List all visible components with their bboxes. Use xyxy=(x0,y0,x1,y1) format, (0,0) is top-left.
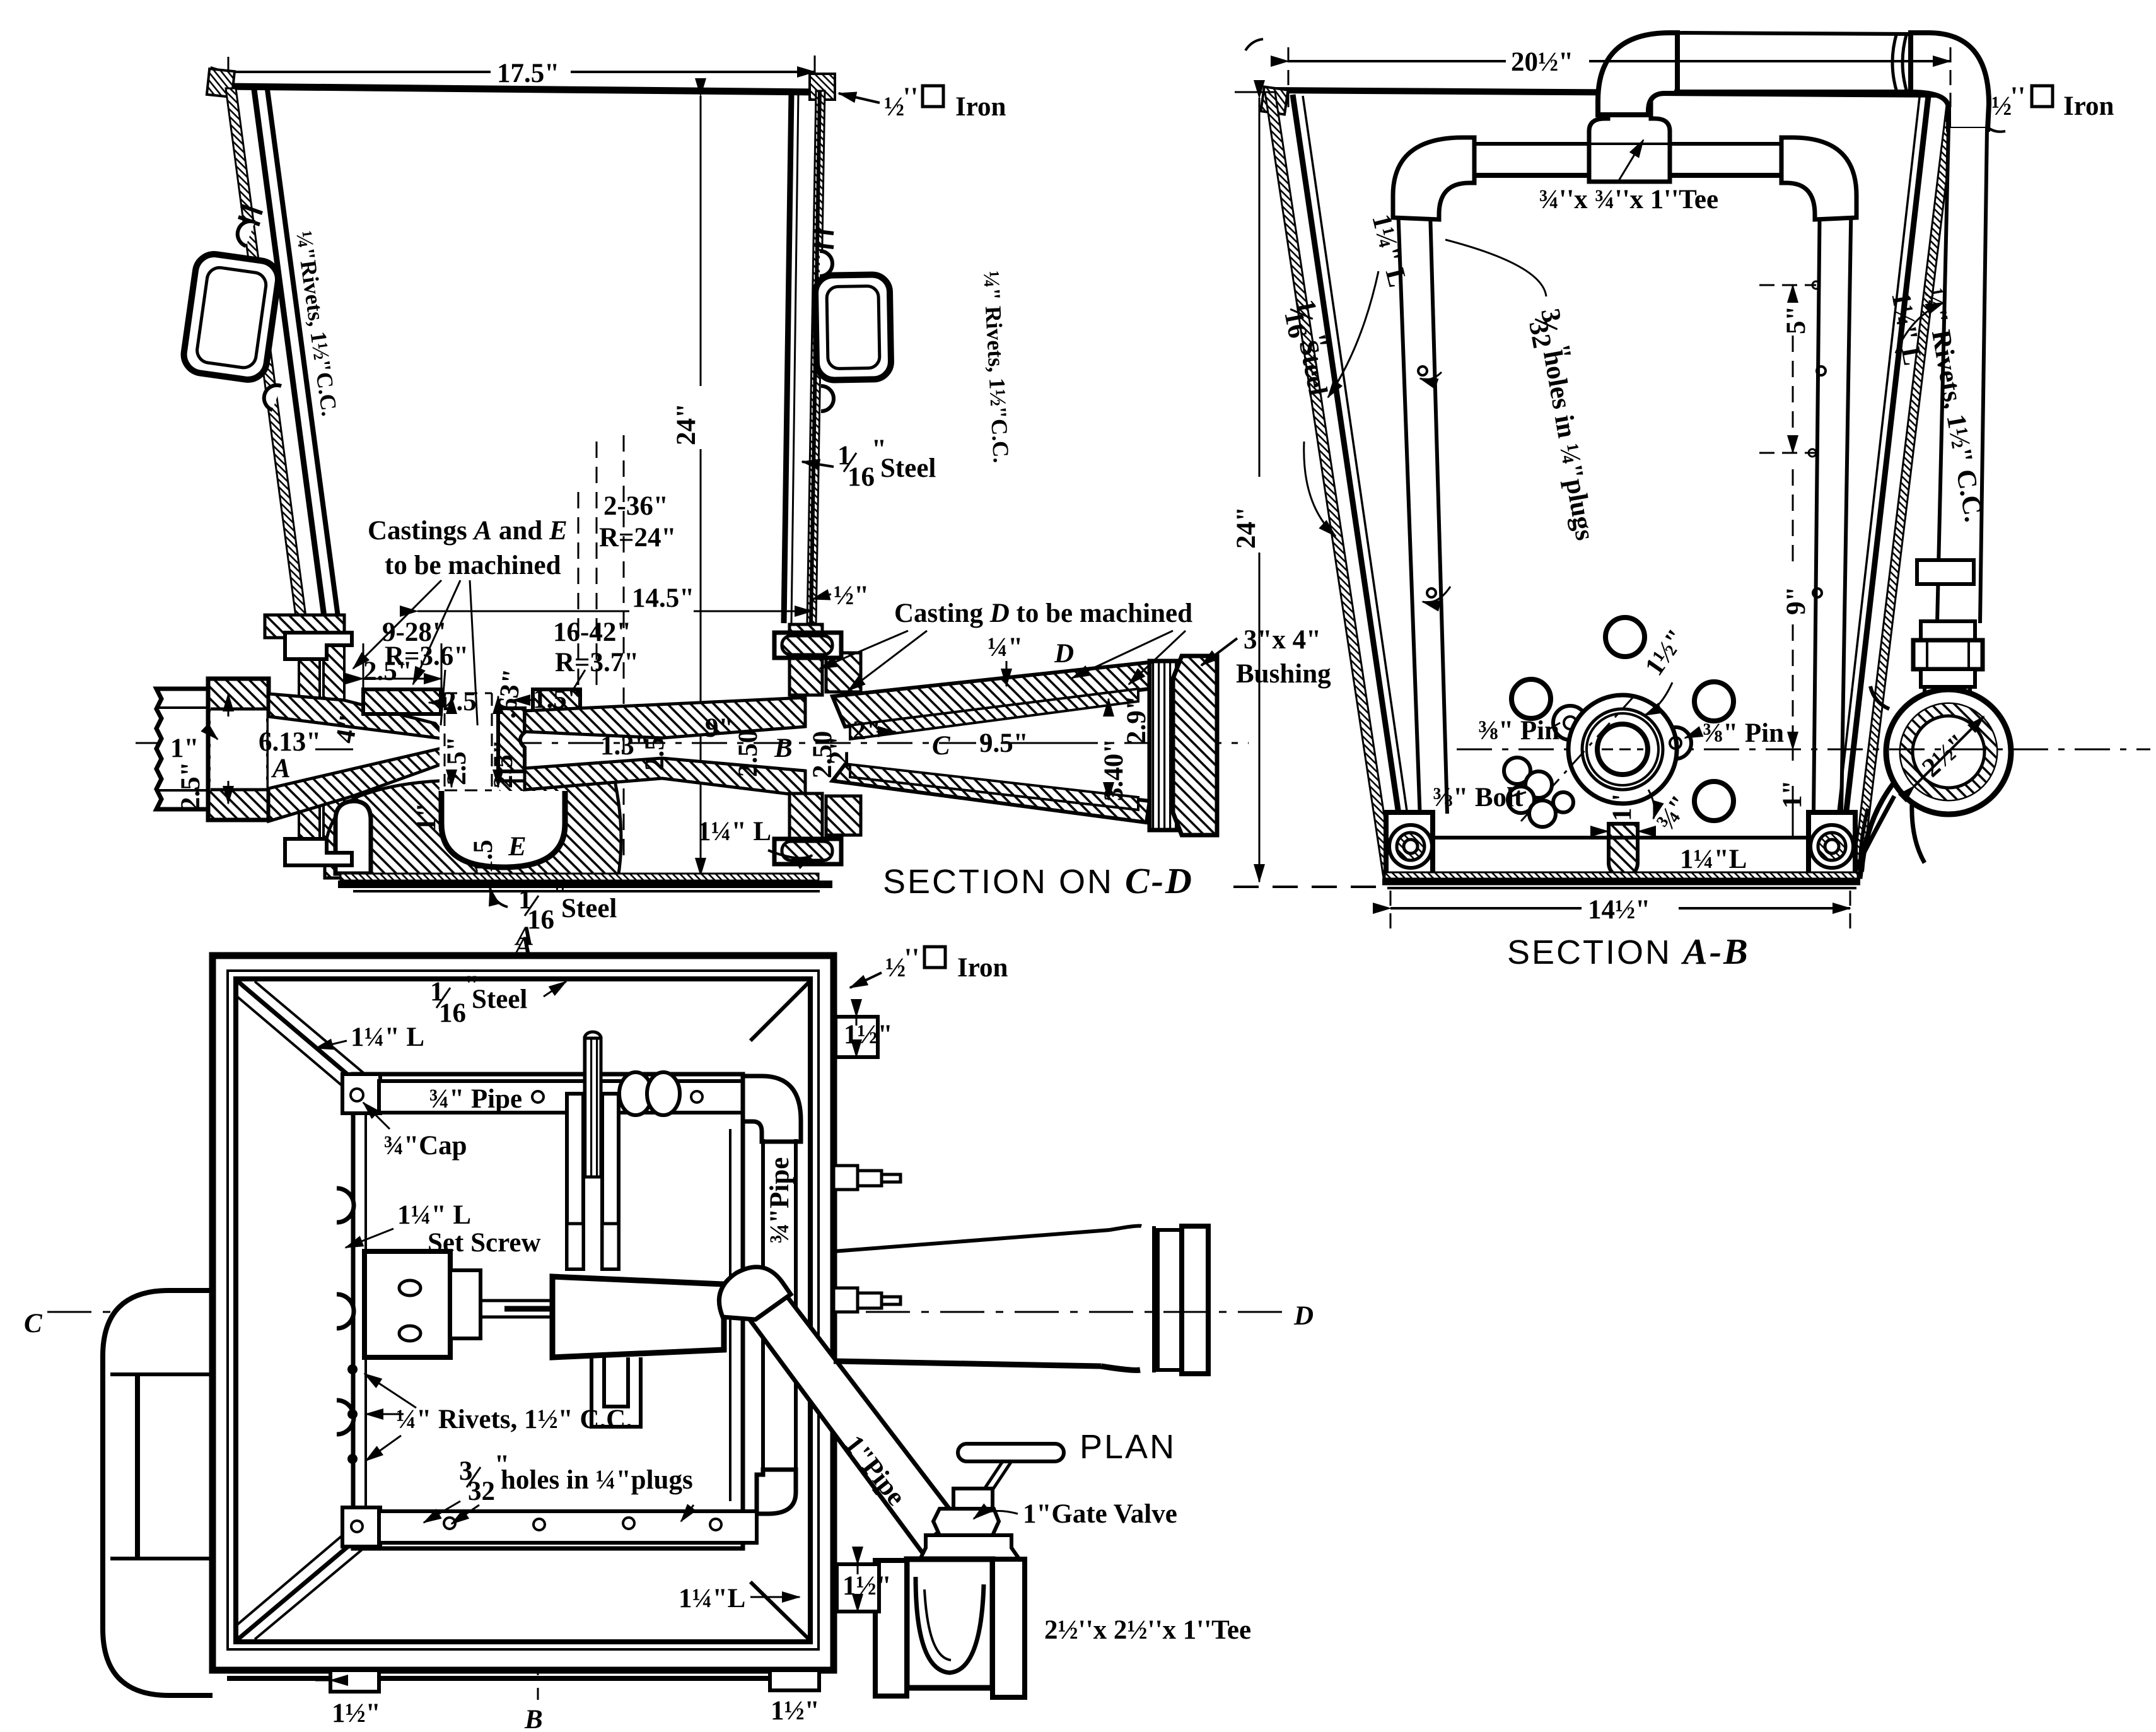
svg-text:Casting D to be machined: Casting D to be machined xyxy=(894,599,1192,628)
svg-text:2.9": 2.9" xyxy=(1122,695,1151,744)
svg-text:20½": 20½" xyxy=(1511,47,1573,77)
svg-text:Steel: Steel xyxy=(561,894,617,923)
svg-text:2.50: 2.50 xyxy=(733,730,763,777)
svg-text:2.5": 2.5" xyxy=(442,736,472,785)
svg-text:3.40": 3.40" xyxy=(1099,739,1129,801)
svg-text:1¼"L: 1¼"L xyxy=(1680,845,1747,874)
svg-text:1½": 1½" xyxy=(844,1020,893,1050)
svg-text:16-42": 16-42" xyxy=(553,617,631,647)
svg-text:9": 9" xyxy=(1781,587,1811,615)
svg-text:Iron: Iron xyxy=(957,953,1008,983)
svg-text:1": 1" xyxy=(1607,793,1637,821)
svg-text:Bushing: Bushing xyxy=(1236,659,1331,689)
svg-text:1": 1" xyxy=(1778,780,1807,809)
svg-text:½: ½ xyxy=(885,953,906,983)
svg-text:14½": 14½" xyxy=(1588,895,1650,925)
svg-text:½": ½" xyxy=(834,581,869,611)
svg-text:32: 32 xyxy=(468,1477,495,1506)
svg-text:½: ½ xyxy=(1991,91,2012,121)
svg-text:C: C xyxy=(932,731,951,761)
svg-text:1½": 1½" xyxy=(771,1696,820,1726)
svg-text:B: B xyxy=(774,734,793,763)
svg-text:¾''x ¾''x 1''Tee: ¾''x ¾''x 1''Tee xyxy=(1539,185,1718,214)
svg-text:1.5": 1.5" xyxy=(533,684,582,714)
svg-text:A: A xyxy=(514,922,534,951)
svg-text:D: D xyxy=(1293,1301,1314,1331)
svg-text:SECTION A-B: SECTION A-B xyxy=(1507,931,1750,972)
svg-text:1.5: 1.5 xyxy=(469,840,498,874)
svg-text:A: A xyxy=(271,754,291,783)
svg-text:Steel: Steel xyxy=(880,453,936,483)
svg-text:2.5: 2.5 xyxy=(640,737,670,771)
svg-text:¼": ¼" xyxy=(988,633,1023,662)
svg-text:5": 5" xyxy=(1781,306,1811,334)
svg-text:14.5": 14.5" xyxy=(632,583,694,613)
svg-text:24": 24" xyxy=(672,403,701,445)
svg-text:2.5": 2.5" xyxy=(176,761,206,810)
svg-text:'': '' xyxy=(2010,82,2025,112)
svg-text:⅜" Pin: ⅜" Pin xyxy=(1478,716,1559,746)
svg-text:1¼"L: 1¼"L xyxy=(679,1584,745,1613)
svg-text:Steel: Steel xyxy=(472,985,527,1014)
svg-text:2.5": 2.5" xyxy=(363,657,412,686)
svg-text:C: C xyxy=(24,1309,43,1338)
svg-text:1¼" L: 1¼" L xyxy=(697,817,771,846)
svg-text:Castings A and E: Castings A and E xyxy=(368,516,568,546)
svg-text:B: B xyxy=(524,1705,543,1732)
svg-text:2.5: 2.5 xyxy=(443,687,477,717)
svg-text:16: 16 xyxy=(439,998,466,1028)
svg-text:16: 16 xyxy=(848,462,875,492)
svg-text:1½": 1½" xyxy=(332,1699,381,1728)
svg-text:9.5": 9.5" xyxy=(979,728,1028,758)
svg-text:⅜" Bolt: ⅜" Bolt xyxy=(1433,783,1524,812)
svg-text:1": 1" xyxy=(170,734,199,763)
svg-text:E: E xyxy=(508,832,527,862)
svg-text:2.5": 2.5" xyxy=(489,739,518,788)
svg-text:½: ½ xyxy=(884,92,904,122)
svg-text:SECTION ON C-D: SECTION ON C-D xyxy=(883,860,1194,901)
svg-text:1": 1" xyxy=(412,803,441,831)
svg-text:'': '' xyxy=(904,944,919,973)
svg-text:D: D xyxy=(1054,639,1074,669)
svg-text:2½''x 2½''x 1''Tee: 2½''x 2½''x 1''Tee xyxy=(1044,1615,1251,1645)
svg-text:¾"Cap: ¾"Cap xyxy=(383,1131,467,1161)
svg-text:to be machined: to be machined xyxy=(385,551,561,580)
svg-text:¾" Pipe: ¾" Pipe xyxy=(429,1084,522,1114)
svg-text:3"x 4": 3"x 4" xyxy=(1244,625,1321,655)
svg-text:9": 9" xyxy=(705,713,733,743)
svg-text:¼" Rivets, 1½" C.C.: ¼" Rivets, 1½" C.C. xyxy=(396,1405,632,1434)
svg-text:2-36": 2-36" xyxy=(603,491,668,521)
svg-text:Iron: Iron xyxy=(955,92,1006,122)
svg-text:24": 24" xyxy=(1232,506,1261,549)
svg-text:holes in ¼"plugs: holes in ¼"plugs xyxy=(501,1465,693,1495)
svg-text:¾"Pipe: ¾"Pipe xyxy=(765,1157,795,1244)
svg-text:2": 2" xyxy=(825,736,854,764)
svg-text:1½": 1½" xyxy=(842,1571,892,1601)
svg-text:17.5": 17.5" xyxy=(497,59,559,88)
svg-text:⅜" Pin: ⅜" Pin xyxy=(1703,718,1784,748)
svg-text:1¼" L: 1¼" L xyxy=(351,1022,424,1052)
svg-text:'': '' xyxy=(903,83,918,112)
svg-text:4": 4" xyxy=(330,712,364,746)
svg-text:6.13": 6.13" xyxy=(259,727,321,757)
svg-text:R=24": R=24" xyxy=(599,523,676,553)
svg-text:PLAN: PLAN xyxy=(1080,1428,1176,1466)
svg-text:1"Gate Valve: 1"Gate Valve xyxy=(1023,1499,1177,1529)
svg-text:1¼" L: 1¼" L xyxy=(397,1200,471,1230)
svg-text:Iron: Iron xyxy=(2063,91,2114,121)
